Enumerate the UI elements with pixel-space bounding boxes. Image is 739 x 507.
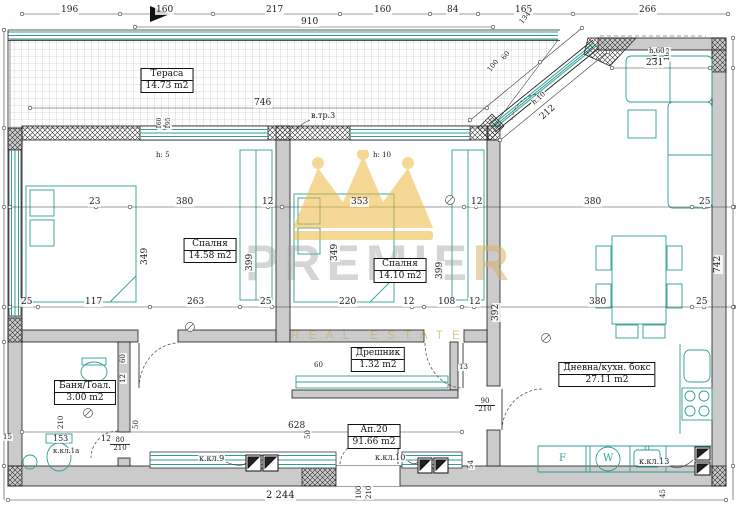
door-size-bath: 80 210 (110, 437, 130, 452)
dim-label: 60 (500, 49, 512, 62)
dim-label: 160 (373, 6, 392, 15)
dim-label: 217 (265, 6, 284, 15)
dim-label: 12 (261, 198, 274, 207)
dim-label: 195 (166, 117, 172, 130)
dim-label: 263 (186, 298, 205, 307)
room-name: Дрешник (352, 348, 404, 360)
door-height: 210 (110, 445, 130, 452)
room-label-apartment: Ап.20 91.66 m2 (348, 424, 401, 449)
dim-label: 12 (402, 298, 415, 307)
dim-label: 399 (246, 253, 255, 272)
dim-label: 25 (698, 198, 711, 207)
dim-label: 50 (133, 419, 140, 430)
dim-label: 380 (583, 198, 602, 207)
room-name: Баня/Тоал. (55, 381, 115, 393)
room-area: 27.11 m2 (559, 375, 654, 386)
dim-label: 380 (175, 198, 194, 207)
dim-label: 231 (645, 59, 664, 68)
door-size-entry-width: 100 (356, 485, 363, 500)
dim-label: 60 (120, 353, 127, 364)
room-area: 91.66 m2 (349, 437, 400, 448)
annotation-kkl10: к.кл.10 (374, 454, 406, 462)
room-area: 1.32 m2 (352, 360, 404, 371)
dim-label: 117 (84, 298, 103, 307)
dim-label: 25 (259, 298, 272, 307)
annotation-kkl1a: к.кл.1а (52, 448, 80, 455)
room-label-terrace: Тераса 14.73 m2 (141, 68, 194, 93)
room-name: Дневна/кухн. бокс (559, 363, 654, 375)
room-name: Спалня (375, 259, 426, 271)
dim-label: 266 (638, 6, 657, 15)
dim-label: 108 (437, 298, 456, 307)
annotation-kkl13: к.кл.13 (638, 458, 670, 466)
dim-label: 399 (436, 261, 445, 280)
annotation-h10-diag: h.10 (530, 90, 548, 107)
dim-label: 746 (253, 99, 272, 108)
dim-label: 60 (313, 362, 324, 369)
dim-label: 25 (20, 298, 33, 307)
room-area: 14.10 m2 (375, 271, 426, 282)
room-area: 14.73 m2 (142, 81, 193, 92)
room-area: 3.00 m2 (55, 393, 115, 404)
dim-label: 23 (88, 198, 101, 207)
dim-label: 54 (468, 459, 475, 470)
room-label-closet: Дрешник 1.32 m2 (351, 347, 405, 372)
dim-label: 210 (58, 415, 65, 430)
door-height: 210 (475, 406, 495, 413)
dim-label: 196 (60, 6, 79, 15)
door-size-living: 90 210 (475, 398, 495, 413)
dim-label: 12 (468, 298, 481, 307)
dim-label: 212 (538, 103, 558, 123)
room-name: Ап.20 (349, 425, 400, 437)
dim-label: 50 (305, 429, 312, 440)
dim-label: 25 (695, 298, 708, 307)
floor-plan: PREMIER REAL ESTATE 196 160 217 160 84 1… (0, 0, 739, 507)
dim-label: 160 (157, 117, 163, 130)
washer-symbol: W (602, 454, 614, 464)
dim-label: 84 (446, 6, 459, 15)
dim-label: 392 (492, 303, 501, 322)
dim-label: 220 (338, 298, 357, 307)
dim-label: 12 (470, 198, 483, 207)
dim-label: 13 (458, 364, 469, 371)
room-label-bedroom2: Спалня 14.10 m2 (374, 258, 427, 283)
dim-label: 910 (300, 18, 319, 27)
dim-label: 380 (588, 298, 607, 307)
dim-label: 153 (52, 435, 69, 443)
dim-label: 742 (714, 255, 723, 274)
room-label-bedroom1: Спалня 14.58 m2 (184, 238, 237, 263)
annotation-kkl9: к.кл.9 (198, 455, 225, 463)
annotation-vtr3: в.тр.3 (310, 112, 336, 120)
room-name: Тераса (142, 69, 193, 81)
dim-label: 45 (660, 488, 667, 499)
dim-label: 160 (155, 6, 174, 15)
annotation-h60: h.60 (648, 48, 666, 55)
dim-label: 15 (2, 434, 13, 441)
annotation-h10: h: 10 (372, 152, 392, 159)
annotation-h5: h: 5 (155, 152, 171, 159)
dim-label: 12 (120, 373, 127, 384)
room-label-bath: Баня/Тоал. 3.00 m2 (54, 380, 116, 405)
dim-label: 353 (350, 198, 369, 207)
dim-label: 349 (331, 243, 340, 262)
dim-label: 2 244 (265, 491, 296, 501)
room-area: 14.58 m2 (185, 251, 236, 262)
dim-label: 349 (141, 247, 150, 266)
room-label-living: Дневна/кухн. бокс 27.11 m2 (558, 362, 655, 387)
fridge-symbol: F (558, 454, 567, 464)
room-name: Спалня (185, 239, 236, 251)
dim-label: 100 (486, 58, 501, 74)
door-size-entry-height: 210 (366, 485, 373, 500)
